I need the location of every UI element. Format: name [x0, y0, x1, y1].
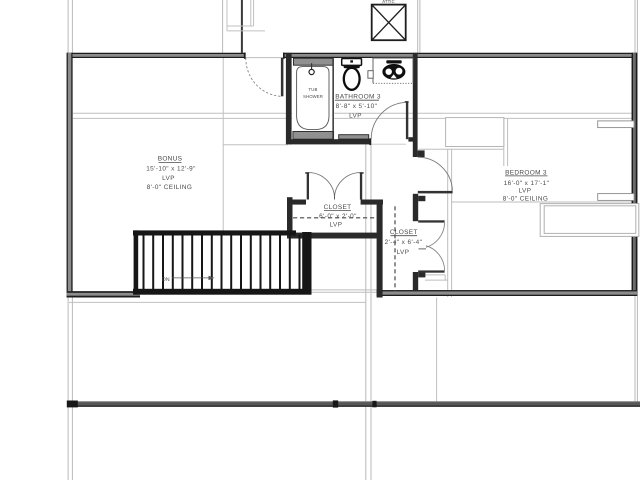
svg-text:BONUS: BONUS — [158, 156, 183, 163]
svg-text:8'-0" CEILING: 8'-0" CEILING — [503, 196, 549, 203]
svg-text:LVP: LVP — [397, 249, 410, 256]
svg-text:CLOSET: CLOSET — [390, 229, 418, 236]
svg-text:SHOWER: SHOWER — [303, 94, 323, 99]
svg-text:LVP: LVP — [349, 112, 362, 119]
svg-text:ATTIC: ATTIC — [382, 0, 395, 4]
svg-text:CLOSET: CLOSET — [324, 204, 352, 211]
svg-text:8'-0" CEILING: 8'-0" CEILING — [147, 184, 193, 191]
svg-text:DN: DN — [162, 277, 170, 283]
svg-text:TUB: TUB — [309, 87, 318, 92]
svg-text:15'-10" x 12'-9": 15'-10" x 12'-9" — [146, 166, 196, 173]
svg-text:16'-0" x 17'-1": 16'-0" x 17'-1" — [504, 180, 550, 187]
svg-text:LVP: LVP — [519, 187, 532, 194]
svg-text:8'-8" x 5'-10": 8'-8" x 5'-10" — [336, 103, 378, 110]
svg-text:LVP: LVP — [330, 222, 343, 229]
svg-text:BATHROOM 3: BATHROOM 3 — [335, 93, 381, 100]
svg-text:2'-4" x 6'-4": 2'-4" x 6'-4" — [385, 239, 423, 246]
svg-text:6'-0" x 2'-0": 6'-0" x 2'-0" — [319, 213, 357, 220]
svg-text:BEDROOM 3: BEDROOM 3 — [505, 169, 547, 176]
svg-text:LVP: LVP — [162, 175, 175, 182]
